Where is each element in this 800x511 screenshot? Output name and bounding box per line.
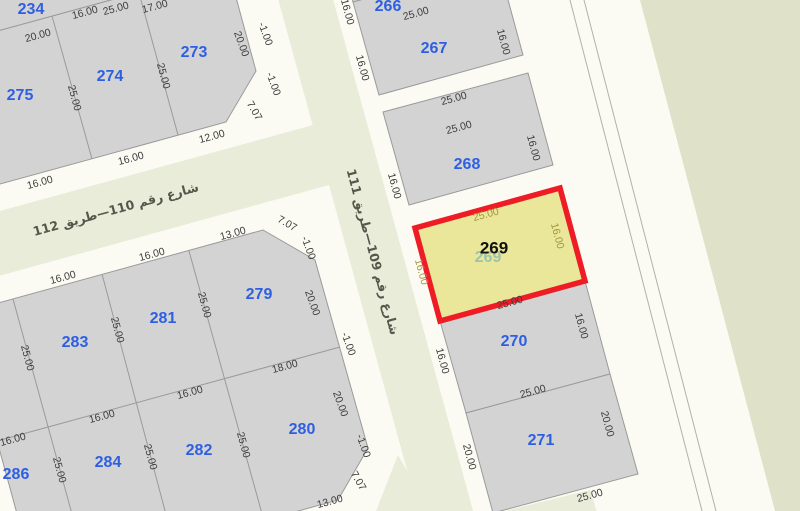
- parcel-label-266: 266: [375, 0, 402, 15]
- parcel-label-275: 275: [7, 87, 34, 104]
- parcel-label-283: 283: [62, 334, 89, 351]
- parcel-label-281: 281: [150, 310, 177, 327]
- parcel-label-280: 280: [289, 421, 316, 438]
- parcel-label-269: 269: [480, 238, 508, 257]
- parcel-label-286: 286: [3, 466, 30, 483]
- cadastral-map[interactable]: 00 20.00 16.00 25.00 17.00 -1.00 20.00 -…: [0, 0, 800, 511]
- parcel-label-267: 267: [421, 40, 448, 57]
- parcel-label-279: 279: [246, 286, 273, 303]
- parcel-label-284: 284: [95, 454, 122, 471]
- parcel-label-273: 273: [181, 44, 208, 61]
- parcel-label-282: 282: [186, 442, 213, 459]
- parcel-label-270: 270: [501, 333, 528, 350]
- parcel-label-234: 234: [18, 1, 45, 18]
- parcel-label-268: 268: [454, 156, 481, 173]
- parcel-label-271: 271: [528, 432, 555, 449]
- map-viewport[interactable]: 00 20.00 16.00 25.00 17.00 -1.00 20.00 -…: [0, 0, 800, 511]
- parcel-label-274: 274: [97, 68, 124, 85]
